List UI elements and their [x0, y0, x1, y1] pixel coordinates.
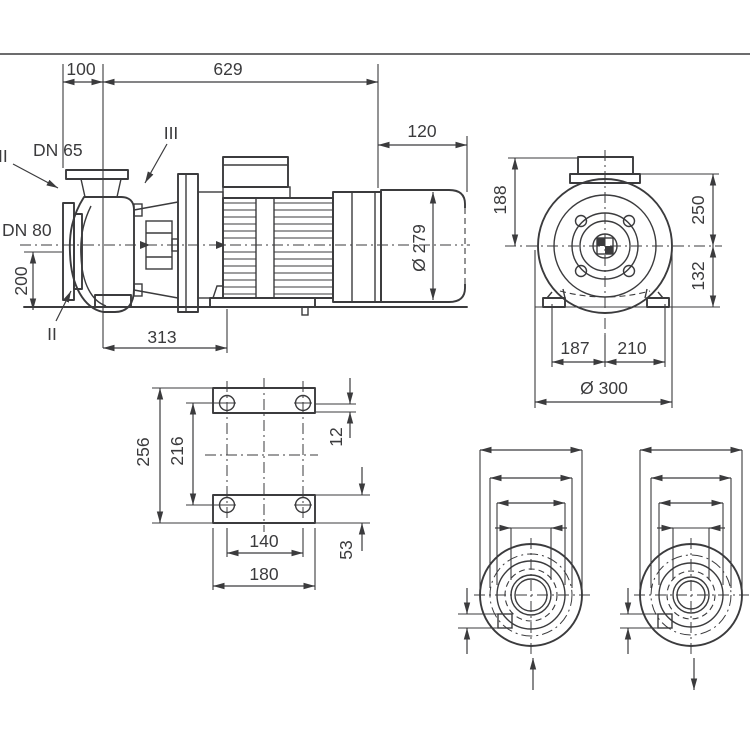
dim-256: 256 — [133, 437, 153, 466]
dim-313: 313 — [147, 327, 176, 347]
flange-dn1-geometry — [474, 538, 592, 658]
dim-187: 187 — [560, 338, 589, 358]
dim-300: Ø 300 — [580, 378, 628, 398]
dim-216: 216 — [167, 436, 187, 465]
dim-279: Ø 279 — [409, 224, 429, 272]
dim-210: 210 — [617, 338, 646, 358]
dim-250: 250 — [688, 195, 708, 224]
label-dn80: DN 80 — [2, 220, 52, 240]
side-view: 100 629 120 313 200 Ø 279 DN 65 DN 80 II… — [0, 59, 470, 353]
pump-dimensional-drawing: 100 629 120 313 200 Ø 279 DN 65 DN 80 II… — [0, 0, 750, 750]
label-dn65: DN 65 — [33, 140, 83, 160]
dim-140: 140 — [249, 531, 278, 551]
dim-53: 53 — [336, 540, 356, 559]
foot-geometry — [205, 378, 318, 532]
pump-side-geometry — [24, 157, 467, 315]
dim-180: 180 — [249, 564, 278, 584]
dim-629: 629 — [213, 59, 242, 79]
pump-front-geometry — [505, 150, 722, 335]
flange-view-dn1 — [458, 450, 592, 690]
flange-view-dn2 — [620, 450, 749, 690]
dim-120: 120 — [407, 121, 436, 141]
section-label-ii-top: II — [0, 146, 8, 166]
dim-100: 100 — [66, 59, 95, 79]
drawing-sheet: 100 629 120 313 200 Ø 279 DN 65 DN 80 II… — [0, 0, 750, 750]
dim-188: 188 — [490, 185, 510, 214]
dim-132: 132 — [688, 261, 708, 290]
section-label-iii: III — [164, 123, 179, 143]
front-view: 188 250 132 187 210 Ø 300 — [490, 150, 722, 408]
foot-plan-view: 256 216 12 53 140 180 — [133, 378, 370, 590]
dim-12: 12 — [326, 427, 346, 446]
dim-200: 200 — [11, 266, 31, 295]
section-label-ii-bottom: II — [47, 324, 57, 344]
